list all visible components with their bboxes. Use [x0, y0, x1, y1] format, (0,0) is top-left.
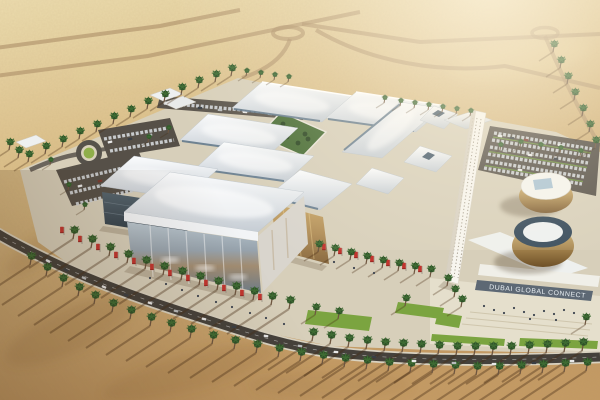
- shadow-vignette: [0, 170, 430, 400]
- aerial-render: DUBAI GLOBAL CONNECT: [0, 0, 600, 400]
- aerial-render-stage: DUBAI GLOBAL CONNECT: [0, 0, 600, 400]
